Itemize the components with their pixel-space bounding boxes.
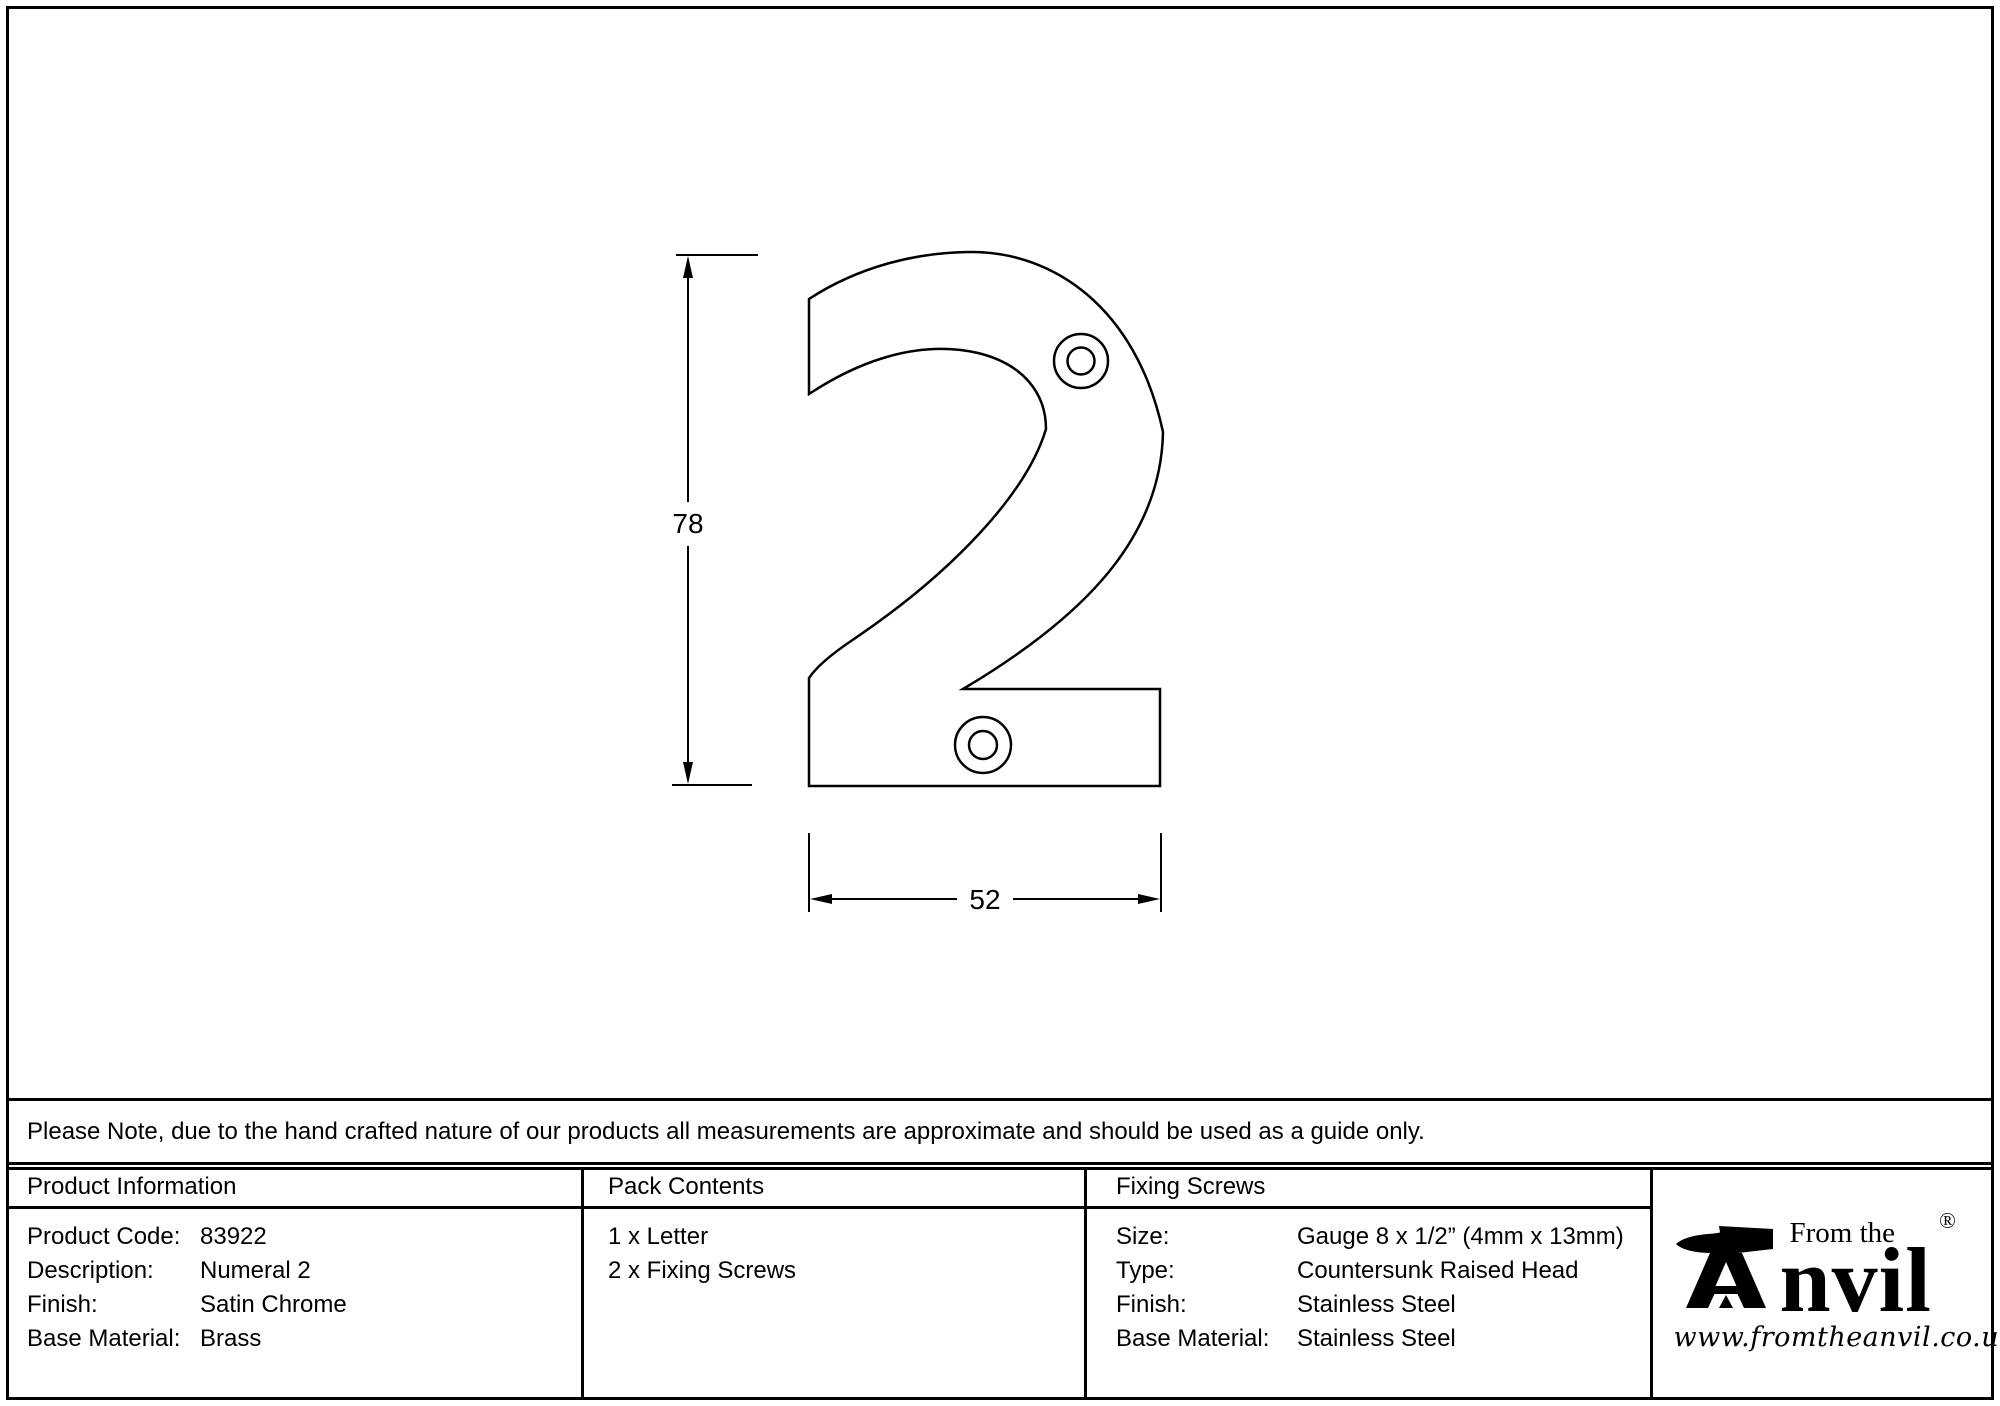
- base-material-value: Brass: [200, 1322, 261, 1356]
- screw-type-row: Type: Countersunk Raised Head: [1116, 1254, 1650, 1288]
- pack-item-letter: 1 x Letter: [608, 1220, 1084, 1254]
- pack-item-screws: 2 x Fixing Screws: [608, 1254, 1084, 1288]
- measurement-notice: Please Note, due to the hand crafted nat…: [6, 1098, 1994, 1165]
- description-row: Description: Numeral 2: [27, 1254, 581, 1288]
- screw-size-label: Size:: [1116, 1220, 1297, 1254]
- width-arrow-right: [1138, 894, 1160, 904]
- finish-value: Satin Chrome: [200, 1288, 347, 1322]
- screw-finish-row: Finish: Stainless Steel: [1116, 1288, 1650, 1322]
- product-information-header: Product Information: [27, 1170, 581, 1206]
- height-dim-label: 78: [672, 508, 703, 539]
- top-screw-hole: [1054, 334, 1108, 388]
- registered-trademark-icon: ®: [1939, 1208, 1956, 1234]
- fixing-screws-header: Fixing Screws: [1116, 1170, 1650, 1206]
- screw-base-material-value: Stainless Steel: [1297, 1322, 1456, 1356]
- numeral-2-outline: [809, 252, 1163, 786]
- brand-logo-cell: From the nvil ® www.fromtheanvil.co.uk: [1653, 1170, 1994, 1400]
- fixing-screws-column: Fixing Screws Size: Gauge 8 x 1/2” (4mm …: [1087, 1170, 1650, 1400]
- pack-contents-column: Pack Contents 1 x Letter 2 x Fixing Scre…: [584, 1170, 1084, 1400]
- measurement-notice-text: Please Note, due to the hand crafted nat…: [27, 1118, 1425, 1146]
- screw-base-material-row: Base Material: Stainless Steel: [1116, 1322, 1650, 1356]
- screw-type-label: Type:: [1116, 1254, 1297, 1288]
- height-arrow-down: [683, 762, 693, 784]
- spec-table: Product Information Product Code: 83922 …: [6, 1167, 1994, 1400]
- screw-finish-label: Finish:: [1116, 1288, 1297, 1322]
- description-value: Numeral 2: [200, 1254, 311, 1288]
- pack-contents-header: Pack Contents: [608, 1170, 1084, 1206]
- width-dim-label: 52: [969, 884, 1000, 915]
- height-arrow-up: [683, 256, 693, 278]
- product-code-row: Product Code: 83922: [27, 1220, 581, 1254]
- product-code-label: Product Code:: [27, 1220, 200, 1254]
- finish-label: Finish:: [27, 1288, 200, 1322]
- anvil-icon: [1674, 1224, 1778, 1312]
- bottom-screw-hole: [955, 717, 1011, 773]
- screw-base-material-label: Base Material:: [1116, 1322, 1297, 1356]
- numeral-technical-drawing: 78 52: [0, 0, 2000, 1100]
- screw-finish-value: Stainless Steel: [1297, 1288, 1456, 1322]
- from-the-anvil-logo: From the nvil ® www.fromtheanvil.co.uk: [1674, 1218, 1974, 1353]
- screw-type-value: Countersunk Raised Head: [1297, 1254, 1579, 1288]
- description-label: Description:: [27, 1254, 200, 1288]
- product-information-column: Product Information Product Code: 83922 …: [6, 1170, 581, 1400]
- screw-size-value: Gauge 8 x 1/2” (4mm x 13mm): [1297, 1220, 1624, 1254]
- base-material-label: Base Material:: [27, 1322, 200, 1356]
- screw-size-row: Size: Gauge 8 x 1/2” (4mm x 13mm): [1116, 1220, 1650, 1254]
- product-code-value: 83922: [200, 1220, 267, 1254]
- finish-row: Finish: Satin Chrome: [27, 1288, 581, 1322]
- logo-brand-text: nvil: [1780, 1248, 1932, 1312]
- spec-sheet-page: 78 52 Please Note, due to the hand craft…: [0, 0, 2000, 1406]
- base-material-row: Base Material: Brass: [27, 1322, 581, 1356]
- width-arrow-left: [810, 894, 832, 904]
